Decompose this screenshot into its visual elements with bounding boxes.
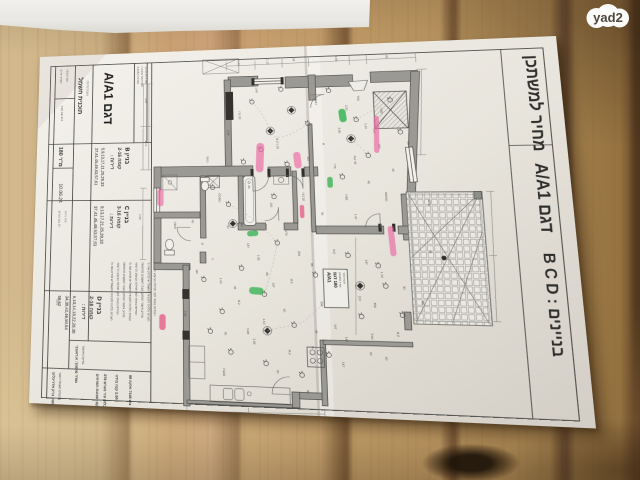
svg-text:רדח: רדח (332, 164, 336, 169)
svg-text:2.05: 2.05 (334, 56, 338, 62)
svg-text:הריד תרבוח: הריד תרבוח (85, 81, 90, 96)
svg-text:45X: 45X (372, 302, 376, 308)
svg-text:1.85: 1.85 (384, 53, 388, 59)
svg-text:157: 157 (357, 296, 361, 302)
svg-text:1.10: 1.10 (262, 318, 266, 325)
svg-text:ש: ש (310, 346, 314, 349)
svg-text:2.55: 2.55 (226, 130, 230, 136)
svg-text:34,38,42,46,50,54: 34,38,42,46,50,54 (64, 296, 69, 330)
svg-text:1.55: 1.55 (256, 255, 260, 261)
svg-text:יוניש לכ עוציבה תליחת ינפל רתא: יוניש לכ עוציבה תליחת ינפל רתאב תודימה (134, 262, 139, 315)
svg-text:1.10: 1.10 (265, 59, 269, 65)
svg-text:ישאר למשח סדנהמ: ישאר למשח סדנהמ (57, 372, 62, 400)
svg-text:ח/45: ח/45 (246, 328, 250, 335)
svg-text:180 ר"מ: 180 ר"מ (57, 147, 64, 167)
svg-text:תספרמ: תספרמ (384, 192, 388, 202)
svg-text:ש: ש (321, 143, 325, 145)
svg-text:ש.ק: ש.ק (237, 300, 241, 305)
svg-text:2.70: 2.70 (144, 141, 147, 147)
svg-text:CO.BU: CO.BU (217, 193, 221, 202)
svg-text:yad2: yad2 (593, 10, 623, 25)
svg-text:294: 294 (319, 301, 323, 307)
svg-text:ח/2.20: ח/2.20 (301, 193, 305, 202)
svg-text:ח/90: ח/90 (379, 108, 383, 115)
svg-text:1.55: 1.55 (138, 214, 141, 220)
svg-text:147: 147 (341, 362, 345, 368)
svg-text:147: 147 (333, 324, 337, 330)
svg-text:A/A1: A/A1 (326, 272, 333, 284)
svg-text:הפצרהמ םיעקשה הבוג ןנכתמה רושי: הפצרהמ םיעקשה הבוג ןנכתמה רושיא בייחמ (122, 262, 126, 317)
svg-text:ש.ק: ש.ק (287, 350, 291, 356)
svg-text:1.40: 1.40 (254, 87, 258, 93)
svg-text:ש.ק 1.10: ש.ק 1.10 (275, 138, 279, 149)
svg-text:ח/85: ח/85 (344, 194, 348, 201)
svg-text:147: 147 (306, 156, 310, 161)
svg-text:דממ: דממ (356, 95, 360, 101)
svg-text:ח/1.20: ח/1.20 (237, 111, 241, 120)
svg-text:1.20: 1.20 (363, 123, 367, 129)
svg-text:ש: ש (200, 243, 204, 245)
svg-text:2.90: 2.90 (337, 128, 341, 134)
svg-text:2.80: 2.80 (183, 311, 187, 318)
svg-text:לכ תא קודבל שי למשחה תינכתל תו: לכ תא קודבל שי למשחה תינכתל תויללכ תורעה (128, 262, 133, 321)
svg-text:D ןיינב: D ןיינב (95, 296, 102, 315)
svg-text:עוציב בלש: עוציב בלש (64, 211, 69, 223)
svg-text:שרגמ 'סמ 27: שרגמ 'סמ 27 (57, 211, 62, 228)
svg-text:A/A1 םגד: A/A1 םגד (101, 72, 116, 125)
svg-text:0.0452 הרודהמ: 0.0452 הרודהמ (136, 67, 139, 85)
svg-text:םגד 180: םגד 180 (332, 272, 338, 288)
svg-text:147: 147 (364, 260, 368, 266)
svg-text:ש.ק: ש.ק (332, 249, 336, 254)
svg-text:הסינכ: הסינכ (205, 156, 209, 164)
svg-text:יוניש לכ עוציבה תליחת ינפל רתא: יוניש לכ עוציבה תליחת ינפל רתאב תודימה (153, 263, 158, 316)
svg-text:1.20: 1.20 (219, 278, 223, 284)
svg-text:3-16 המוק: 3-16 המוק (116, 206, 122, 229)
svg-text:ץבוק םש 114: ץבוק םש 114 (60, 106, 65, 122)
svg-text:3.85: 3.85 (144, 98, 147, 104)
svg-text:ינבואר.א :ךמסומ דדומ: ינבואר.א :ךמסומ דדומ (74, 345, 79, 383)
svg-text:1.40: 1.40 (237, 60, 241, 66)
svg-text:ןוכדע ךיראת: ןוכדע ךיראת (59, 70, 62, 84)
svg-text:5,9,13,17,21,25,29,33: 5,9,13,17,21,25,29,33 (100, 148, 105, 187)
svg-text:הנמזה 'סמ: הנמזה 'סמ (65, 69, 69, 81)
svg-text:ש.ק 45: ש.ק 45 (353, 156, 357, 165)
svg-text:: תוריד: : תוריד (81, 304, 87, 320)
svg-text:ןולס: ןולס (297, 251, 302, 256)
svg-text:88 הקלח 7146 שוג: 88 הקלח 7146 שוג (128, 375, 133, 406)
svg-text:278 שרגמ ריע קולב: 278 שרגמ ריע קולב (102, 374, 107, 408)
svg-text:יוניש לכ עוציבה תליחת ינפל רתא: יוניש לכ עוציבה תליחת ינפל רתאב תודימה (116, 262, 121, 315)
svg-text:147: 147 (314, 100, 318, 105)
svg-text:37,41,45,49,53,57,61: 37,41,45,49,53,57,61 (94, 148, 99, 185)
svg-text:1.47: 1.47 (353, 214, 357, 220)
svg-text:שמש: שמש (427, 200, 431, 207)
svg-text:12.03.24 ךיראת: 12.03.24 ךיראת (144, 66, 147, 84)
svg-text:147: 147 (344, 337, 348, 343)
svg-text:9,13,17,21,25,29,33: 9,13,17,21,25,29,33 (99, 206, 105, 244)
svg-text:רושיא: רושיא (55, 298, 58, 305)
svg-text:טבמא: טבמא (173, 222, 176, 230)
svg-text:רושיאו הקידב: רושיאו הקידב (81, 346, 86, 365)
svg-text:הפצרהמ םיעקשה הבוג ןנכתמה רושי: הפצרהמ םיעקשה הבוג ןנכתמה רושיא בייחמ (140, 262, 144, 318)
svg-text:הדימ הנק 1:50: הדימ הנק 1:50 (114, 374, 119, 400)
svg-text:6,10,14,18,22,26,30: 6,10,14,18,22,26,30 (71, 296, 76, 334)
svg-text:חבטמ: חבטמ (222, 368, 226, 376)
svg-text:ש.ק: ש.ק (396, 332, 400, 338)
svg-text:ממ: ממ (195, 270, 199, 274)
svg-text:2-16 המוק: 2-16 המוק (88, 296, 94, 320)
svg-text:ש.ק: ש.ק (289, 279, 293, 284)
svg-text:C ןיינב: C ןיינב (123, 206, 130, 224)
svg-text:147: 147 (271, 283, 275, 289)
svg-text:10.06.24: 10.06.24 (58, 183, 64, 203)
svg-text:B ןיינב: B ןיינב (123, 147, 130, 164)
svg-text:: תוריד: : תוריד (109, 155, 115, 170)
svg-text:1.10: 1.10 (379, 272, 383, 279)
svg-text:3.05: 3.05 (252, 338, 256, 345)
svg-text:ח/70: ח/70 (284, 229, 288, 236)
svg-text:לכ תא קודבל שי למשחה תינכתל תו: לכ תא קודבל שי למשחה תינכתל תויללכ תורעה (146, 262, 151, 321)
svg-text:37,41,45,49,53,57,61: 37,41,45,49,53,57,61 (93, 206, 99, 246)
svg-text:147: 147 (246, 243, 250, 249)
svg-text:: תוריד: : תוריד (109, 213, 115, 228)
svg-text:2-16 המוק: 2-16 המוק (117, 148, 123, 170)
svg-text:155: 155 (269, 202, 273, 207)
